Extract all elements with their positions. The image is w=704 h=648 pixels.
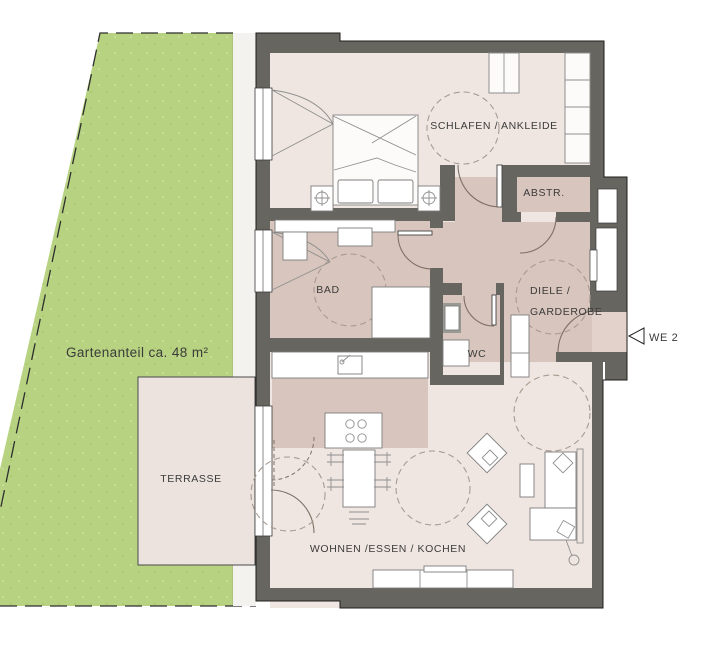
wardrobe-top (489, 53, 519, 93)
washbasin-icon (338, 228, 372, 246)
washing-machine-icon (283, 232, 307, 260)
room-label-living: WOHNEN /ESSEN / KOCHEN (310, 543, 466, 555)
room-label-bathroom: BAD (316, 284, 339, 296)
unit-label: WE 2 (649, 332, 678, 344)
nightstand-right (418, 186, 440, 211)
terrace: TERRASSE (138, 377, 255, 565)
kitchen-counter (272, 352, 428, 378)
floor-plan-drawing: TERRASSE (0, 0, 704, 648)
unit-marker: WE 2 (629, 328, 678, 344)
bed-icon (333, 115, 418, 205)
floor-plan-page: TERRASSE (0, 0, 704, 648)
wc-basin-icon (443, 340, 469, 366)
entrance-arrow-icon (629, 328, 644, 344)
hall-cabinet (511, 315, 529, 377)
garden-label: Gartenanteil ca. 48 m² (66, 345, 208, 360)
wardrobe-right (565, 53, 590, 163)
terrace-label: TERRASSE (160, 473, 221, 485)
room-label-bedroom: SCHLAFEN / ANKLEIDE (430, 120, 558, 132)
room-label-storage: ABSTR. (523, 187, 565, 199)
room-label-wc: WC (468, 348, 487, 360)
toilet-icon (443, 303, 461, 333)
room-label-hall-line2: GARDEROBE (530, 306, 603, 318)
coffee-table (520, 464, 534, 497)
niche-2 (596, 228, 617, 291)
cooktop-island (325, 413, 382, 448)
sink-icon (338, 355, 362, 374)
shower-icon (372, 287, 430, 338)
nightstand-left (311, 186, 333, 211)
dining-table (343, 450, 375, 507)
niche-opening (590, 250, 597, 281)
niche-1 (598, 189, 617, 223)
entry-recess-floor (592, 312, 627, 352)
room-label-hall-line1: DIELE / (530, 285, 570, 297)
